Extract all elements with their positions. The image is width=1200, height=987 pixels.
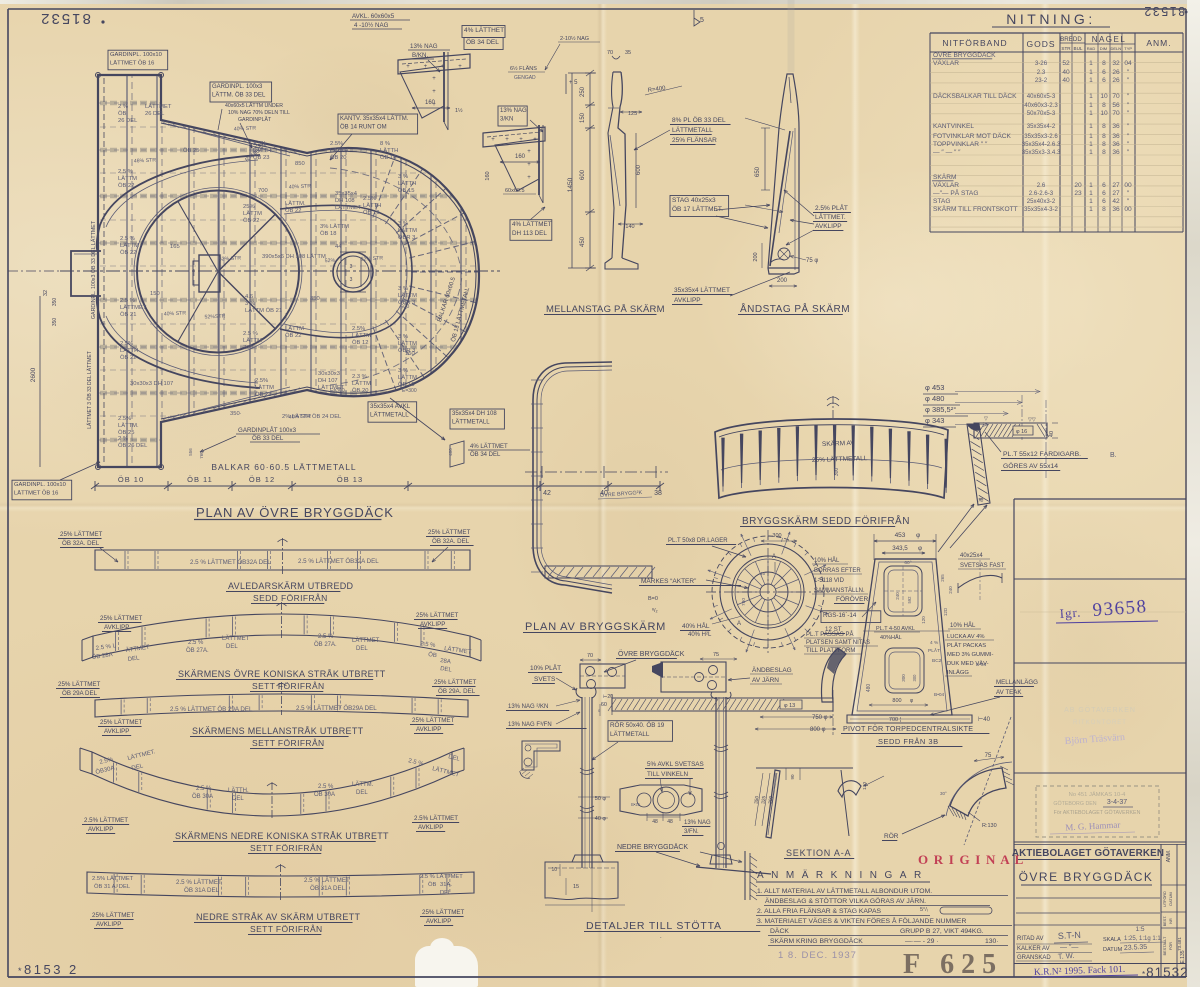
svg-text:30x30x3: 30x30x3 bbox=[318, 371, 340, 377]
svg-text:8: 8 bbox=[1102, 133, 1106, 140]
svg-text:75 φ: 75 φ bbox=[806, 258, 818, 264]
svg-text:1: 1 bbox=[1089, 198, 1093, 205]
svg-text:SKÄRMENS NEDRE KONISKA STRÅK U: SKÄRMENS NEDRE KONISKA STRÅK UTBRETT bbox=[175, 831, 389, 841]
svg-text:LÄTTM: LÄTTM bbox=[243, 210, 262, 217]
svg-text:AV JÄRN: AV JÄRN bbox=[752, 676, 779, 684]
svg-text:+ 5: + 5 bbox=[569, 80, 578, 86]
svg-text:RITAD AV: RITAD AV bbox=[1017, 936, 1043, 942]
svg-text:90: 90 bbox=[790, 774, 795, 780]
svg-text:Igr.: Igr. bbox=[1059, 605, 1082, 621]
svg-text:B•04: B•04 bbox=[976, 662, 987, 668]
svg-text:30x30x3 DH 107: 30x30x3 DH 107 bbox=[130, 381, 173, 387]
svg-text:2.5 %: 2.5 % bbox=[120, 236, 135, 242]
svg-text:DEL: DEL bbox=[131, 763, 144, 772]
svg-text:ANM.: ANM. bbox=[1146, 38, 1171, 48]
svg-text:E=300: E=300 bbox=[402, 388, 417, 394]
svg-text:DEL: DEL bbox=[440, 890, 452, 896]
svg-text:RITKONTORET: RITKONTORET bbox=[1073, 720, 1127, 726]
svg-text:B=0: B=0 bbox=[648, 596, 658, 602]
svg-text:AVKLIPP: AVKLIPP bbox=[420, 621, 445, 628]
svg-text:LÄTTM.: LÄTTM. bbox=[118, 422, 139, 429]
svg-text:ÄNDBESLAG & STÖTTOR VILKA GÖRA: ÄNDBESLAG & STÖTTOR VILKA GÖRAS AV JÄRN. bbox=[765, 897, 926, 905]
svg-text:300: 300 bbox=[768, 795, 775, 804]
svg-text:250: 250 bbox=[580, 86, 586, 97]
svg-text:70: 70 bbox=[607, 50, 613, 56]
svg-text:AB GÖTAVERKEN: AB GÖTAVERKEN bbox=[1064, 706, 1136, 714]
svg-text:35x35x4-2.6.3: 35x35x4-2.6.3 bbox=[1022, 141, 1061, 148]
svg-text:450: 450 bbox=[580, 236, 586, 247]
svg-text:LÄTTMET ÖB 16: LÄTTMET ÖB 16 bbox=[14, 489, 58, 496]
svg-text:10% HÅL: 10% HÅL bbox=[814, 557, 840, 564]
svg-text:BESTÄLLT: BESTÄLLT bbox=[1163, 936, 1167, 955]
svg-text:DEL: DEL bbox=[356, 646, 368, 652]
svg-text:LÄTTH.: LÄTTH. bbox=[228, 787, 249, 794]
svg-text:10% NAG 70% DELN TILL: 10% NAG 70% DELN TILL bbox=[228, 110, 290, 116]
svg-text:MÄRKES “AKTER”: MÄRKES “AKTER” bbox=[641, 577, 696, 585]
svg-text:PLAN AV BRYGGSKÄRM: PLAN AV BRYGGSKÄRM bbox=[525, 621, 666, 633]
svg-text:3-4-37: 3-4-37 bbox=[1107, 799, 1127, 806]
svg-text:35x35x3-3.4.3: 35x35x3-3.4.3 bbox=[1022, 149, 1061, 156]
svg-text:1½: 1½ bbox=[455, 107, 463, 114]
svg-text:A: A bbox=[737, 621, 741, 627]
svg-text:B/KN.: B/KN. bbox=[412, 52, 428, 59]
svg-text:ÖB 17 LÄTTMET.: ÖB 17 LÄTTMET. bbox=[672, 205, 723, 213]
svg-text:25%: 25% bbox=[243, 204, 255, 210]
svg-text:25x40x3-2: 25x40x3-2 bbox=[1027, 198, 1056, 205]
svg-text:35x35x3-2.6: 35x35x3-2.6 bbox=[1024, 133, 1058, 140]
svg-text:5°/₍: 5°/₍ bbox=[920, 907, 929, 913]
svg-text:2.5 %: 2.5 % bbox=[408, 758, 425, 768]
svg-text:KALKER AV: KALKER AV bbox=[1017, 946, 1050, 952]
svg-text:592: 592 bbox=[907, 596, 912, 604]
svg-text:+: + bbox=[527, 162, 531, 168]
svg-text:52% STR: 52% STR bbox=[219, 255, 242, 262]
svg-text:AVKL. 60x60x5: AVKL. 60x60x5 bbox=[352, 13, 395, 20]
svg-text:+: + bbox=[432, 89, 436, 95]
svg-text:ÖB 27A.: ÖB 27A. bbox=[314, 641, 337, 648]
svg-text:15: 15 bbox=[573, 884, 579, 890]
svg-text:NITFÖRBAND: NITFÖRBAND bbox=[942, 38, 1007, 48]
svg-text:SKÄRMENS MELLANSTRÅK UTBRETT: SKÄRMENS MELLANSTRÅK UTBRETT bbox=[192, 726, 364, 736]
svg-text:2.5%: 2.5% bbox=[330, 141, 343, 147]
svg-text:ÖB 26 DEL: ÖB 26 DEL bbox=[118, 442, 148, 449]
svg-text:DEL: DEL bbox=[440, 666, 453, 674]
svg-text:SETT FÖRIFRÅN: SETT FÖRIFRÅN bbox=[252, 681, 325, 691]
svg-text:13% NAG: 13% NAG bbox=[684, 820, 711, 826]
svg-text:GARDINPL. 100x10: GARDINPL. 100x10 bbox=[110, 52, 162, 58]
svg-text:″: ″ bbox=[1127, 133, 1130, 140]
svg-text:GÖRES AV 55x14: GÖRES AV 55x14 bbox=[1003, 462, 1058, 470]
svg-text:25% LÄTTMET: 25% LÄTTMET bbox=[422, 909, 465, 916]
svg-text:No 451 JÄMKAS 10-4: No 451 JÄMKAS 10-4 bbox=[1069, 791, 1126, 798]
svg-text:240: 240 bbox=[895, 592, 900, 600]
svg-text:SETT FÖRIFRÅN: SETT FÖRIFRÅN bbox=[250, 843, 323, 853]
svg-text:NEDRE STRÅK AV SKÄRM UTBRETT: NEDRE STRÅK AV SKÄRM UTBRETT bbox=[196, 912, 360, 922]
svg-text:FÖRÖVER: FÖRÖVER bbox=[836, 595, 868, 603]
svg-text:40 φ: 40 φ bbox=[595, 816, 607, 822]
svg-text:LÄTTMET: LÄTTMET bbox=[352, 637, 380, 644]
svg-text:BREDD: BREDD bbox=[1060, 36, 1082, 43]
svg-text:ÖB 22: ÖB 22 bbox=[285, 207, 301, 214]
svg-text:DEL: DEL bbox=[448, 754, 461, 763]
svg-text:1: 1 bbox=[1089, 93, 1093, 100]
svg-text:GRANSKAD: GRANSKAD bbox=[1017, 955, 1051, 961]
svg-text:150: 150 bbox=[405, 351, 415, 357]
svg-text:F 625: F 625 bbox=[903, 949, 1003, 980]
svg-text:φ: φ bbox=[910, 698, 914, 704]
svg-text:ÖBR 3: ÖBR 3 bbox=[398, 234, 415, 241]
svg-text:SKÄRM TILL FRONTSKOTT: SKÄRM TILL FRONTSKOTT bbox=[933, 205, 1018, 213]
svg-text:UTFÖRD: UTFÖRD bbox=[1163, 891, 1167, 907]
svg-text:ÖB 11: ÖB 11 bbox=[187, 475, 213, 484]
svg-text:LÄTTMETALL: LÄTTMETALL bbox=[452, 419, 490, 426]
svg-text:ÖB 12: ÖB 12 bbox=[249, 475, 275, 484]
svg-text:SKÄRM KRING BRYGGDÄCK: SKÄRM KRING BRYGGDÄCK bbox=[770, 937, 863, 945]
svg-text:2. ALLA FRIA FLÄNSAR & STAG KA: 2. ALLA FRIA FLÄNSAR & STAG KAPAS bbox=[757, 907, 881, 915]
svg-text:300: 300 bbox=[901, 674, 906, 682]
svg-text:AKTIEBOLAGET GÖTAVERKEN: AKTIEBOLAGET GÖTAVERKEN bbox=[1012, 848, 1164, 859]
svg-text:40: 40 bbox=[1062, 77, 1070, 84]
svg-text:165: 165 bbox=[170, 244, 180, 250]
svg-text:240: 240 bbox=[948, 586, 953, 594]
svg-text:1: 1 bbox=[1089, 102, 1093, 109]
svg-text:ÖB 18: ÖB 18 bbox=[320, 230, 336, 237]
svg-text:AV TEAK: AV TEAK bbox=[996, 689, 1022, 696]
svg-text:ÖB30A: ÖB30A bbox=[95, 764, 115, 775]
svg-text:ÖB 34 DEL: ÖB 34 DEL bbox=[466, 38, 499, 46]
svg-text:S.T-N: S.T-N bbox=[1058, 930, 1082, 941]
svg-text:556: 556 bbox=[188, 448, 193, 456]
svg-text:30°: 30° bbox=[940, 791, 947, 796]
svg-text:PL.T 4-50 AVKL: PL.T 4-50 AVKL bbox=[876, 626, 915, 632]
svg-text:SKALA: SKALA bbox=[1103, 937, 1121, 943]
svg-text:40%HÅL: 40%HÅL bbox=[880, 634, 902, 641]
svg-text:2.5 %: 2.5 % bbox=[318, 634, 334, 640]
svg-text:R:130: R:130 bbox=[982, 823, 997, 829]
svg-text:INLÄGG: INLÄGG bbox=[947, 669, 969, 676]
svg-text:150: 150 bbox=[580, 112, 586, 123]
svg-text:6: 6 bbox=[1102, 198, 1106, 205]
svg-text:LÄTTMET: LÄTTMET bbox=[222, 635, 250, 642]
svg-text:DEL: DEL bbox=[226, 644, 238, 650]
svg-text:8 %: 8 % bbox=[380, 141, 390, 147]
svg-text:ÖB 34 DEL: ÖB 34 DEL bbox=[470, 451, 501, 458]
svg-text:3 %: 3 % bbox=[398, 334, 408, 340]
svg-text:36: 36 bbox=[1112, 133, 1120, 140]
svg-text:3% LÄTTM: 3% LÄTTM bbox=[320, 223, 349, 230]
svg-text:4% LÄTTMET: 4% LÄTTMET bbox=[470, 443, 508, 450]
svg-text:130·: 130· bbox=[985, 938, 999, 945]
svg-text:ÖB 14 RUNT OM: ÖB 14 RUNT OM bbox=[340, 124, 387, 131]
svg-text:FÖR: FÖR bbox=[1169, 942, 1173, 950]
svg-text:SAMMANSTÄLLN.: SAMMANSTÄLLN. bbox=[814, 587, 865, 594]
svg-text:LÄTTMETALL: LÄTTMETALL bbox=[672, 126, 713, 134]
svg-text:LÄTTH: LÄTTH bbox=[363, 202, 381, 209]
svg-text:LÄTTM: LÄTTM bbox=[352, 380, 371, 387]
svg-text:2.5 %: 2.5 % bbox=[420, 641, 437, 649]
svg-text:GARDINPL. 100x3: GARDINPL. 100x3 bbox=[212, 84, 263, 90]
svg-text:36: 36 bbox=[1112, 206, 1120, 213]
svg-text:ÖB 31A DEL.: ÖB 31A DEL. bbox=[310, 885, 347, 892]
svg-text:DÄCK: DÄCK bbox=[770, 927, 789, 935]
svg-text:150: 150 bbox=[150, 291, 160, 297]
svg-text:LÄTTM ÖB 21: LÄTTM ÖB 21 bbox=[245, 307, 282, 314]
svg-text:AVKLIPP: AVKLIPP bbox=[104, 624, 129, 631]
svg-text:PLAN AV ÖVRE BRYGGDÄCK: PLAN AV ÖVRE BRYGGDÄCK bbox=[196, 505, 394, 520]
svg-text:GENGAD: GENGAD bbox=[514, 75, 536, 81]
svg-text:NAGEL: NAGEL bbox=[1092, 35, 1127, 44]
svg-text:48: 48 bbox=[652, 819, 658, 825]
svg-text:φ: φ bbox=[918, 545, 922, 552]
svg-text:LÄTTH: LÄTTH bbox=[380, 147, 398, 154]
svg-text:31A.: 31A. bbox=[440, 882, 452, 888]
svg-text:23-2: 23-2 bbox=[1035, 77, 1048, 84]
svg-text:800 φ: 800 φ bbox=[810, 727, 826, 733]
svg-text:ÖB 31 A. DEL: ÖB 31 A. DEL bbox=[94, 883, 131, 890]
svg-text:GODS: GODS bbox=[1026, 39, 1055, 49]
svg-text:2.5% PLÅT: 2.5% PLÅT bbox=[815, 203, 848, 212]
svg-text:LÄTTMET: LÄTTMET bbox=[335, 204, 362, 211]
svg-text:265: 265 bbox=[940, 574, 945, 582]
svg-text:DATUM: DATUM bbox=[1103, 947, 1123, 953]
svg-text:LÄTTMET.: LÄTTMET. bbox=[127, 748, 157, 762]
svg-text:300: 300 bbox=[912, 674, 917, 682]
svg-text:8% PL ÖB 33 DEL: 8% PL ÖB 33 DEL bbox=[672, 116, 726, 124]
svg-text:27: 27 bbox=[1112, 182, 1120, 189]
svg-text:⊢40: ⊢40 bbox=[978, 716, 991, 723]
svg-text:STR: STR bbox=[1061, 46, 1071, 51]
svg-text:φ 16: φ 16 bbox=[1016, 429, 1027, 435]
svg-text:ANM.: ANM. bbox=[1166, 850, 1172, 863]
svg-text:LÄTTMETALL: LÄTTMETALL bbox=[610, 730, 650, 738]
svg-text:ÖB 22: ÖB 22 bbox=[285, 332, 301, 339]
svg-text:10: 10 bbox=[1100, 93, 1108, 100]
svg-text:PLÅT: PLÅT bbox=[928, 647, 940, 654]
svg-text:70: 70 bbox=[587, 653, 593, 659]
svg-text:1: 1 bbox=[1089, 77, 1093, 84]
svg-text:LÄTTH: LÄTTH bbox=[330, 147, 348, 154]
svg-text:R=400: R=400 bbox=[647, 85, 666, 94]
svg-text:B•25: B•25 bbox=[631, 802, 641, 807]
svg-text:ÖB 25: ÖB 25 bbox=[118, 429, 134, 436]
svg-text:1: 1 bbox=[1089, 69, 1093, 76]
svg-text:350: 350 bbox=[52, 318, 58, 327]
svg-text:″: ″ bbox=[1127, 102, 1130, 109]
svg-text:81532: 81532 bbox=[39, 10, 91, 27]
svg-text:För AKTIEBOLAGET GÖTAVERKEN: För AKTIEBOLAGET GÖTAVERKEN bbox=[1054, 809, 1141, 816]
svg-text:2.5% LÄTTMET: 2.5% LÄTTMET bbox=[414, 815, 458, 822]
svg-text:850: 850 bbox=[295, 161, 305, 167]
svg-text:BRYGGSKÄRM SEDD FÖRIFRÅN: BRYGGSKÄRM SEDD FÖRIFRÅN bbox=[742, 514, 910, 527]
svg-text:VÄXLAR: VÄXLAR bbox=[933, 181, 959, 189]
svg-text:26: 26 bbox=[1112, 77, 1120, 84]
svg-text:ÖB 12: ÖB 12 bbox=[352, 339, 368, 346]
svg-text:LÄTTM: LÄTTM bbox=[398, 374, 417, 381]
svg-text:500: 500 bbox=[400, 304, 409, 310]
svg-text:LÄTTM.: LÄTTM. bbox=[285, 200, 306, 207]
svg-text:40% STR: 40% STR bbox=[234, 125, 257, 132]
svg-text:DETALJER TILL STÖTTA: DETALJER TILL STÖTTA bbox=[586, 920, 722, 932]
svg-text:ÖVRE BRYGGDÄCK: ÖVRE BRYGGDÄCK bbox=[1019, 870, 1154, 884]
svg-text:800: 800 bbox=[892, 698, 901, 704]
svg-text:DH 107: DH 107 bbox=[318, 378, 338, 384]
svg-text:700 ¦: 700 ¦ bbox=[889, 717, 901, 723]
svg-text:ÖB 10: ÖB 10 bbox=[118, 475, 144, 484]
svg-text:70: 70 bbox=[1112, 93, 1120, 100]
svg-text:BEST.: BEST. bbox=[1163, 916, 1167, 927]
svg-text:00: 00 bbox=[1124, 206, 1132, 213]
svg-text:ÖB: ÖB bbox=[428, 881, 437, 888]
svg-text:40x60x5 LÄTTM UNDER: 40x60x5 LÄTTM UNDER bbox=[225, 102, 283, 109]
svg-text:8: 8 bbox=[1102, 60, 1106, 67]
svg-text:SEKTION A-A: SEKTION A-A bbox=[786, 848, 851, 858]
svg-text:32: 32 bbox=[43, 290, 49, 296]
svg-text:E.135: E.135 bbox=[1180, 950, 1186, 963]
svg-text:1450: 1450 bbox=[567, 177, 574, 192]
svg-text:40x25x4: 40x25x4 bbox=[960, 553, 983, 559]
svg-text:TILL PLATTFORM: TILL PLATTFORM bbox=[806, 648, 855, 654]
svg-text:GARDINPLÅT: GARDINPLÅT bbox=[238, 116, 272, 123]
svg-text:25% LÄTTMET: 25% LÄTTMET bbox=[100, 615, 143, 622]
svg-text:75: 75 bbox=[713, 652, 719, 658]
svg-text:AVKLIPP: AVKLIPP bbox=[88, 826, 113, 833]
svg-text:2 %: 2 % bbox=[118, 104, 128, 110]
svg-text:— ″—: — ″— bbox=[1060, 944, 1078, 951]
svg-text:2-10½ NAG: 2-10½ NAG bbox=[560, 35, 589, 42]
svg-text:3. MATERIALET VÄGES & VIKTEN F: 3. MATERIALET VÄGES & VIKTEN FÖRES Å FÖL… bbox=[757, 916, 966, 925]
svg-text:AVKLIPP: AVKLIPP bbox=[815, 223, 842, 230]
svg-text:▽▽: ▽▽ bbox=[1028, 417, 1036, 423]
svg-text:DEL: DEL bbox=[127, 655, 140, 663]
svg-text:32: 32 bbox=[1112, 60, 1120, 67]
svg-text:ÖB 19: ÖB 19 bbox=[363, 209, 379, 216]
svg-text:RAD: RAD bbox=[1087, 46, 1096, 51]
svg-text:13% NAG F³/FN: 13% NAG F³/FN bbox=[508, 722, 552, 728]
svg-text:φ 13: φ 13 bbox=[784, 703, 795, 709]
svg-text:LUCKA AV 4%: LUCKA AV 4% bbox=[947, 634, 985, 640]
svg-text:343,5: 343,5 bbox=[892, 545, 908, 552]
svg-text:2.5 %: 2.5 % bbox=[196, 786, 212, 792]
svg-text:25% LÄTTMET: 25% LÄTTMET bbox=[60, 531, 103, 538]
svg-text:KANTVINKEL: KANTVINKEL bbox=[933, 123, 974, 130]
svg-text:″: ″ bbox=[1127, 93, 1130, 100]
svg-text:5: 5 bbox=[700, 17, 704, 24]
svg-text:ÖB 22: ÖB 22 bbox=[120, 354, 136, 361]
svg-text:ÖB 23: ÖB 23 bbox=[255, 391, 271, 398]
svg-text:AVKLIPP: AVKLIPP bbox=[96, 921, 121, 928]
svg-text:40: 40 bbox=[1062, 69, 1070, 76]
svg-text:10: 10 bbox=[551, 867, 557, 873]
svg-text:120: 120 bbox=[921, 616, 926, 624]
svg-text:AVKLIPP: AVKLIPP bbox=[674, 297, 701, 304]
svg-text:PIVOT FÖR TORPEDCENTRALSIKTE: PIVOT FÖR TORPEDCENTRALSIKTE bbox=[843, 724, 973, 733]
svg-text:RGS-16´-14: RGS-16´-14 bbox=[823, 612, 857, 619]
svg-text:04: 04 bbox=[1124, 60, 1132, 67]
svg-text:STAG: STAG bbox=[933, 198, 950, 205]
svg-text:MELLANSTAG PÅ SKÄRM: MELLANSTAG PÅ SKÄRM bbox=[546, 304, 665, 315]
svg-text:40% STR: 40% STR bbox=[289, 413, 312, 420]
svg-text:ÖB 15: ÖB 15 bbox=[398, 187, 414, 194]
svg-text:3: 3 bbox=[350, 264, 353, 270]
svg-text:RÖR: RÖR bbox=[884, 832, 899, 840]
svg-text:1 8. DEC. 1937: 1 8. DEC. 1937 bbox=[778, 950, 857, 961]
svg-text:75: 75 bbox=[985, 753, 992, 759]
svg-text:LÄTTM: LÄTTM bbox=[255, 384, 274, 391]
svg-text:AVKLIPP: AVKLIPP bbox=[418, 824, 443, 831]
svg-text:3 %: 3 % bbox=[245, 301, 255, 307]
svg-text:52%STR: 52%STR bbox=[204, 313, 225, 320]
svg-text:ÖB 22: ÖB 22 bbox=[118, 182, 134, 189]
svg-text:ÖB 30A: ÖB 30A bbox=[192, 793, 213, 800]
svg-text:KANTV. 35x35x4 LÄTTM.: KANTV. 35x35x4 LÄTTM. bbox=[340, 115, 409, 122]
svg-text:1: 1 bbox=[1089, 206, 1093, 213]
svg-text:1: 1 bbox=[1089, 141, 1093, 148]
svg-text:BORRAS EFTER: BORRAS EFTER bbox=[814, 568, 861, 574]
svg-text:TYP: TYP bbox=[1124, 46, 1132, 51]
svg-text:LÄTTM: LÄTTM bbox=[285, 325, 304, 332]
svg-text:38: 38 bbox=[654, 490, 662, 497]
svg-text:LÄTTM: LÄTTM bbox=[398, 227, 417, 234]
svg-text:A: A bbox=[772, 554, 776, 560]
svg-text:ÄNDBESLAG: ÄNDBESLAG bbox=[752, 666, 792, 674]
svg-text:NEDRE BRYGGDÄCK: NEDRE BRYGGDÄCK bbox=[617, 843, 688, 851]
svg-text:2.3 %: 2.3 % bbox=[352, 374, 367, 380]
svg-text:Björn Träsvärn: Björn Träsvärn bbox=[1064, 732, 1125, 747]
svg-text:ÖB 22: ÖB 22 bbox=[243, 217, 259, 224]
svg-text:+: + bbox=[432, 76, 436, 82]
svg-text:DATUM: DATUM bbox=[1169, 892, 1173, 905]
svg-text:40% STR: 40% STR bbox=[289, 183, 312, 190]
svg-text:600: 600 bbox=[580, 169, 586, 180]
svg-text:▽: ▽ bbox=[984, 416, 988, 422]
svg-text:52: 52 bbox=[1062, 60, 1070, 67]
svg-text:25% LÄTTMET: 25% LÄTTMET bbox=[434, 679, 477, 686]
svg-text:+: + bbox=[491, 137, 495, 143]
svg-text:BALKAR 60·60.5 LÄTTMETALL: BALKAR 60·60.5 LÄTTMETALL bbox=[211, 462, 356, 472]
svg-text:1: 1 bbox=[1089, 182, 1093, 189]
svg-text:4 -10½ NAG: 4 -10½ NAG bbox=[354, 22, 389, 29]
svg-text:1:5: 1:5 bbox=[1135, 926, 1144, 933]
svg-text:— ″ — ″ ″: — ″ — ″ ″ bbox=[933, 149, 961, 156]
svg-text:4% LÄTTHET: 4% LÄTTHET bbox=[464, 26, 504, 34]
svg-text:+: + bbox=[406, 64, 410, 70]
svg-text:AVKLIPP: AVKLIPP bbox=[416, 726, 441, 733]
svg-text:ÖB: ÖB bbox=[428, 651, 438, 659]
svg-text:350·: 350· bbox=[230, 411, 242, 417]
svg-text:SEDD FRÅN 3B: SEDD FRÅN 3B bbox=[878, 737, 939, 746]
svg-text:FOTVINKLAR MOT DÄCK: FOTVINKLAR MOT DÄCK bbox=[933, 132, 1012, 140]
svg-text:350: 350 bbox=[52, 298, 58, 307]
svg-text:44: 44 bbox=[335, 244, 342, 250]
svg-text:2.5% LÄTTMET: 2.5% LÄTTMET bbox=[92, 875, 134, 882]
svg-text:2.5 %: 2.5 % bbox=[118, 169, 133, 175]
svg-text:LÄTTMETALL: LÄTTMETALL bbox=[370, 412, 409, 419]
svg-text:60x60.5: 60x60.5 bbox=[505, 188, 525, 194]
svg-text:LÄTTMET 3 ÖB 33 DEL LÄTTMET: LÄTTMET 3 ÖB 33 DEL LÄTTMET bbox=[86, 351, 93, 429]
svg-text:25% LÄTTMET: 25% LÄTTMET bbox=[58, 681, 101, 688]
svg-text:3: 3 bbox=[350, 277, 353, 283]
svg-text:390x5x6 DH 108 LÄTTM: 390x5x6 DH 108 LÄTTM bbox=[262, 253, 326, 260]
svg-text:4% LÄTTMET: 4% LÄTTMET bbox=[512, 220, 552, 228]
svg-text:B•04: B•04 bbox=[934, 692, 945, 698]
svg-text:LÄTTM: LÄTTM bbox=[398, 292, 417, 299]
svg-text:35x35x4 DH 108: 35x35x4 DH 108 bbox=[452, 411, 497, 417]
svg-text:3 %: 3 % bbox=[398, 174, 408, 180]
svg-text:LÄTTH: LÄTTH bbox=[120, 347, 138, 354]
svg-text:70: 70 bbox=[1112, 110, 1120, 117]
svg-text:+: + bbox=[527, 149, 531, 155]
svg-text:DH 113 DEL: DH 113 DEL bbox=[512, 230, 547, 237]
